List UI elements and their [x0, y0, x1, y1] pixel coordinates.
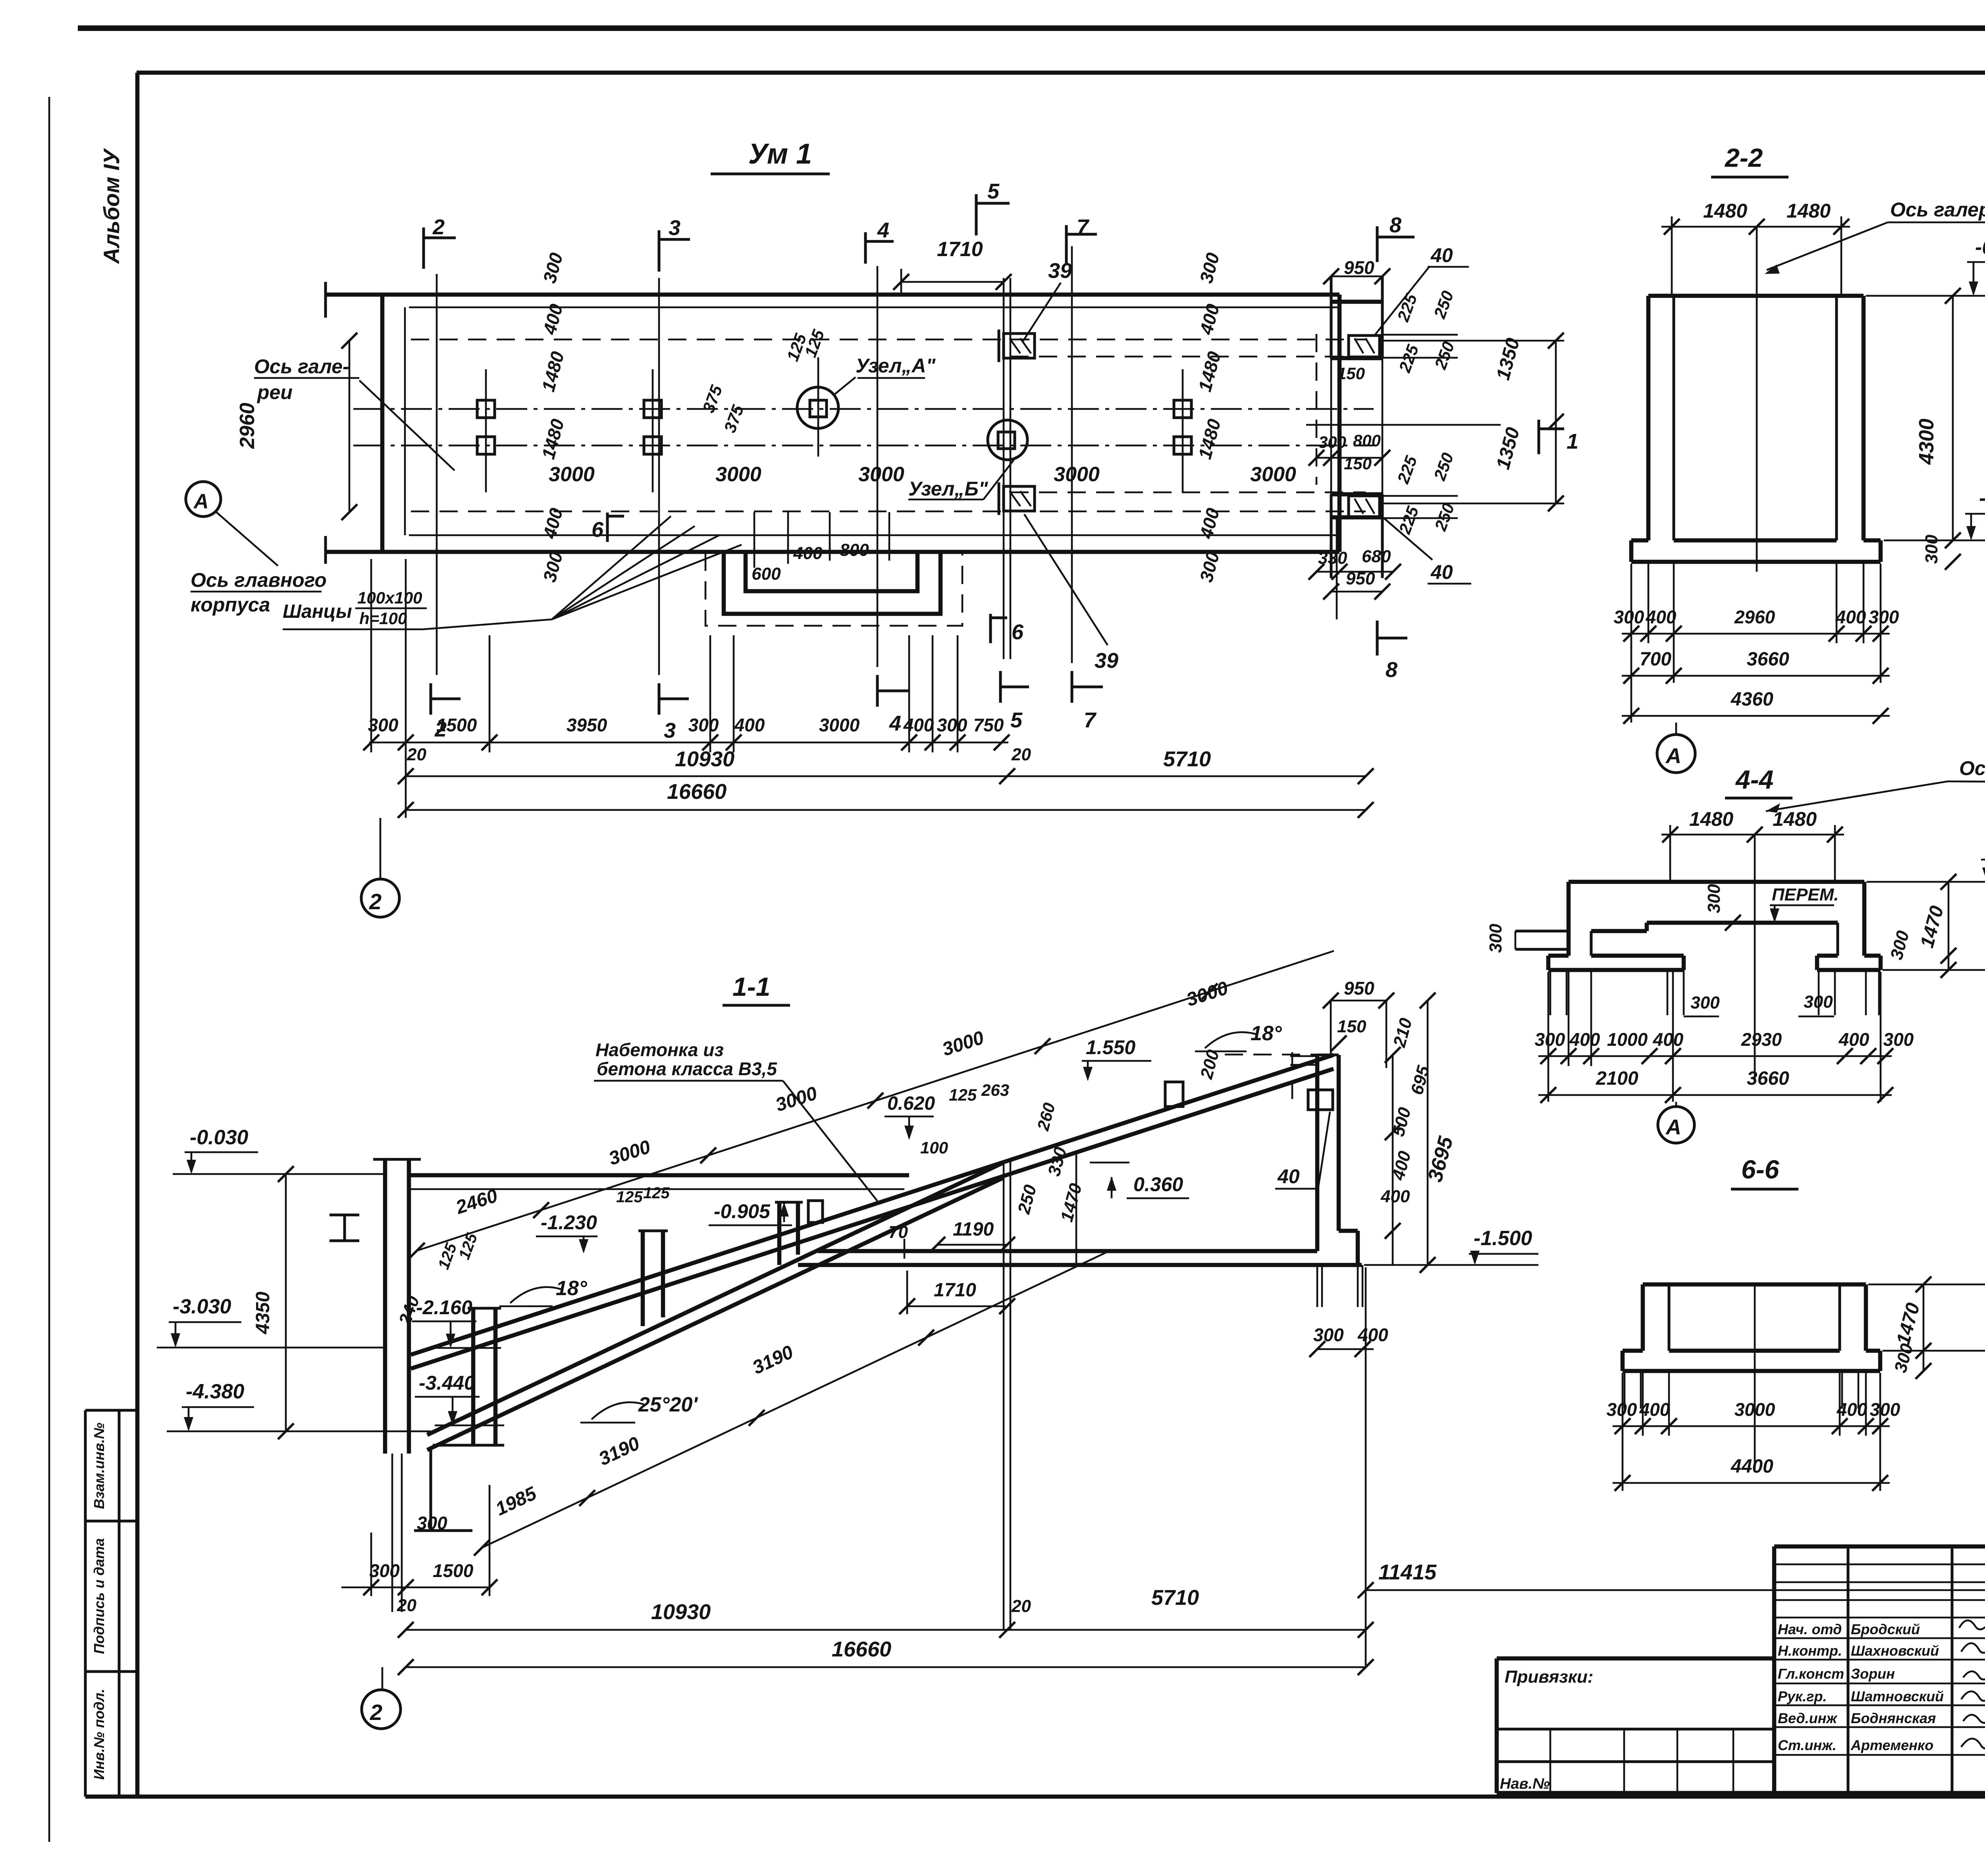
svg-text:300: 300	[369, 1560, 400, 1581]
svg-text:1500: 1500	[433, 1560, 474, 1581]
svg-text:10930: 10930	[651, 1600, 711, 1624]
svg-text:2: 2	[370, 1700, 382, 1725]
svg-text:400: 400	[1639, 1399, 1670, 1420]
svg-text:125: 125	[616, 1188, 643, 1206]
svg-text:10930: 10930	[675, 747, 734, 771]
svg-text:-1.500: -1.500	[1474, 1227, 1532, 1250]
svg-text:Рук.гр.: Рук.гр.	[1778, 1688, 1827, 1704]
svg-text:Узел„Б": Узел„Б"	[908, 478, 989, 500]
svg-text:125: 125	[643, 1184, 670, 1202]
svg-text:Бродский: Бродский	[1851, 1621, 1920, 1637]
svg-text:Привязки:: Привязки:	[1505, 1667, 1594, 1687]
svg-text:1480: 1480	[538, 416, 568, 461]
svg-text:8: 8	[1389, 213, 1401, 237]
svg-text:300: 300	[1887, 928, 1913, 962]
svg-text:2960: 2960	[236, 403, 259, 449]
svg-text:1985: 1985	[492, 1483, 540, 1520]
svg-text:ПЕРЕМ.: ПЕРЕМ.	[1772, 885, 1839, 904]
svg-text:375: 375	[720, 402, 747, 435]
svg-text:3000: 3000	[1734, 1399, 1775, 1420]
svg-text:3695: 3695	[1424, 1134, 1458, 1184]
svg-text:16660: 16660	[667, 780, 727, 804]
svg-text:39: 39	[1095, 649, 1118, 673]
svg-text:2: 2	[369, 889, 382, 914]
svg-text:2930: 2930	[1741, 1029, 1782, 1050]
svg-text:250: 250	[1430, 288, 1457, 321]
svg-text:3950: 3950	[567, 715, 607, 735]
svg-text:950: 950	[1344, 257, 1374, 278]
svg-text:4: 4	[889, 711, 901, 735]
svg-text:1: 1	[1567, 430, 1578, 453]
svg-text:750: 750	[973, 715, 1004, 735]
svg-text:1190: 1190	[953, 1219, 994, 1240]
svg-text:5710: 5710	[1151, 1586, 1199, 1610]
svg-text:3: 3	[669, 216, 680, 240]
svg-text:3000: 3000	[819, 715, 860, 735]
svg-text:Ось галереи: Ось галереи	[1890, 199, 1985, 221]
svg-text:3: 3	[664, 719, 676, 742]
svg-text:Шанцы: Шанцы	[283, 601, 352, 622]
svg-text:реи: реи	[256, 381, 293, 403]
svg-text:7: 7	[1077, 215, 1090, 239]
svg-text:400: 400	[903, 715, 934, 735]
svg-text:150: 150	[1337, 364, 1365, 383]
svg-text:1500: 1500	[436, 715, 477, 735]
svg-text:-2.160: -2.160	[416, 1296, 472, 1319]
svg-text:600: 600	[752, 564, 781, 584]
svg-text:330: 330	[1318, 548, 1347, 568]
svg-text:400: 400	[1653, 1029, 1684, 1050]
svg-text:300: 300	[1313, 1325, 1344, 1345]
svg-text:-3.030: -3.030	[173, 1295, 231, 1318]
svg-text:3000: 3000	[549, 463, 595, 486]
svg-text:h=100: h=100	[359, 609, 407, 628]
svg-text:-3.440: -3.440	[419, 1372, 475, 1394]
svg-text:400: 400	[1835, 607, 1866, 627]
svg-text:400: 400	[793, 544, 823, 563]
svg-text:1470: 1470	[1916, 904, 1948, 950]
svg-text:400: 400	[1837, 1399, 1867, 1420]
svg-text:400: 400	[734, 715, 765, 735]
svg-text:5: 5	[987, 179, 1000, 203]
svg-text:950: 950	[1344, 978, 1374, 999]
svg-text:16660: 16660	[832, 1637, 891, 1661]
svg-text:Ум 1: Ум 1	[748, 138, 812, 170]
svg-text:8: 8	[1386, 658, 1397, 682]
svg-text:300: 300	[539, 549, 567, 584]
svg-text:1350: 1350	[1492, 425, 1524, 472]
svg-text:Нав.№: Нав.№	[1500, 1776, 1550, 1792]
svg-text:4300: 4300	[1915, 418, 1938, 465]
svg-text:100: 100	[920, 1138, 948, 1157]
svg-text:700: 700	[1640, 649, 1671, 670]
svg-text:300: 300	[1318, 433, 1346, 451]
svg-text:20: 20	[397, 1596, 416, 1615]
svg-text:Н.контр.: Н.контр.	[1778, 1643, 1842, 1659]
svg-text:20: 20	[1011, 1596, 1031, 1616]
svg-text:300: 300	[368, 715, 399, 735]
svg-text:3660: 3660	[1747, 649, 1789, 670]
svg-text:бетона класса В3,5: бетона класса В3,5	[597, 1059, 777, 1079]
svg-text:3000: 3000	[1184, 978, 1231, 1010]
svg-text:25°20': 25°20'	[638, 1393, 698, 1416]
svg-text:225: 225	[1395, 342, 1422, 375]
svg-text:2460: 2460	[453, 1185, 500, 1219]
svg-text:300: 300	[1486, 924, 1505, 953]
svg-text:3000: 3000	[1250, 463, 1296, 486]
svg-text:Подпись и дата: Подпись и дата	[91, 1538, 107, 1654]
svg-text:3000: 3000	[858, 463, 904, 486]
svg-text:Ст.инж.: Ст.инж.	[1778, 1737, 1837, 1753]
svg-text:300: 300	[1535, 1029, 1565, 1050]
svg-text:695: 695	[1407, 1063, 1433, 1097]
svg-text:125: 125	[801, 327, 828, 360]
svg-text:Инв.№ подл.: Инв.№ подл.	[91, 1689, 107, 1780]
svg-text:Ось гале-: Ось гале-	[254, 355, 349, 378]
svg-text:300: 300	[937, 715, 967, 735]
svg-text:11415: 11415	[1378, 1560, 1437, 1584]
svg-text:4400: 4400	[1731, 1456, 1773, 1477]
svg-text:210: 210	[1389, 1016, 1416, 1049]
svg-text:40: 40	[1277, 1165, 1300, 1188]
svg-text:3000: 3000	[715, 463, 761, 486]
svg-text:20: 20	[1011, 745, 1031, 764]
svg-text:1350: 1350	[1492, 336, 1524, 382]
svg-text:300: 300	[417, 1513, 447, 1533]
svg-text:корпуса: корпуса	[191, 594, 270, 616]
svg-text:1-1: 1-1	[732, 972, 770, 1001]
svg-text:-0.030: -0.030	[1975, 236, 1985, 259]
svg-text:6: 6	[1012, 620, 1024, 644]
svg-text:375: 375	[699, 382, 726, 415]
svg-text:300: 300	[1883, 1029, 1914, 1050]
svg-text:200: 200	[1197, 1047, 1223, 1081]
svg-text:Вед.инж: Вед.инж	[1778, 1710, 1838, 1726]
svg-text:-0.030: -0.030	[190, 1126, 249, 1149]
svg-text:-0.905: -0.905	[714, 1200, 771, 1222]
svg-text:150: 150	[1337, 1017, 1366, 1036]
svg-text:2-2: 2-2	[1724, 143, 1763, 172]
svg-text:300: 300	[1870, 1399, 1900, 1420]
svg-text:Узел„А": Узел„А"	[856, 355, 936, 377]
svg-text:800: 800	[1353, 431, 1381, 450]
svg-text:330: 330	[1044, 1145, 1070, 1178]
svg-text:3190: 3190	[749, 1342, 796, 1379]
svg-text:6-6: 6-6	[1741, 1155, 1780, 1184]
svg-text:20: 20	[407, 745, 426, 764]
svg-text:1.550: 1.550	[1086, 1036, 1135, 1059]
svg-text:300: 300	[1690, 993, 1720, 1012]
svg-text:300: 300	[1614, 607, 1644, 627]
svg-text:2960: 2960	[1734, 607, 1775, 627]
svg-text:250: 250	[1431, 339, 1458, 372]
svg-text:3190: 3190	[595, 1433, 643, 1470]
svg-text:400: 400	[1357, 1325, 1388, 1345]
svg-text:5710: 5710	[1163, 747, 1211, 771]
svg-text:0.360: 0.360	[1133, 1173, 1183, 1195]
svg-text:300: 300	[1195, 549, 1223, 584]
svg-text:Боднянская: Боднянская	[1851, 1710, 1936, 1726]
svg-text:Взам.инв.№: Взам.инв.№	[91, 1423, 107, 1509]
svg-text:4350: 4350	[252, 1292, 274, 1334]
svg-text:40: 40	[1430, 561, 1453, 583]
svg-text:225: 225	[1393, 453, 1421, 486]
svg-text:4360: 4360	[1731, 689, 1773, 710]
svg-text:Ось галереи: Ось галереи	[1959, 757, 1985, 779]
svg-text:2: 2	[432, 215, 445, 239]
svg-text:3000: 3000	[1054, 463, 1100, 486]
svg-text:7: 7	[1084, 708, 1097, 732]
svg-text:Гл.конст: Гл.конст	[1778, 1666, 1844, 1682]
svg-text:1470: 1470	[1892, 1301, 1924, 1347]
svg-text:100х100: 100х100	[357, 588, 422, 607]
svg-text:300: 300	[1869, 607, 1899, 627]
svg-text:-4.380: -4.380	[186, 1380, 245, 1403]
svg-text:950: 950	[1346, 569, 1375, 588]
svg-text:А: А	[1665, 744, 1681, 768]
svg-text:250: 250	[1430, 450, 1457, 483]
svg-text:5: 5	[1010, 708, 1023, 732]
svg-text:680: 680	[1362, 547, 1391, 566]
svg-text:3000: 3000	[940, 1027, 987, 1060]
svg-text:1480: 1480	[1786, 200, 1831, 222]
svg-text:1710: 1710	[937, 238, 983, 261]
svg-text:800: 800	[840, 540, 869, 560]
svg-text:Артеменко: Артеменко	[1850, 1737, 1933, 1753]
svg-text:3000: 3000	[606, 1136, 653, 1169]
svg-text:1480: 1480	[1703, 200, 1747, 222]
svg-text:250: 250	[1014, 1182, 1041, 1216]
svg-text:Нач. отд: Нач. отд	[1778, 1621, 1842, 1637]
svg-text:А: А	[1665, 1115, 1681, 1139]
svg-text:2100: 2100	[1596, 1068, 1638, 1089]
svg-text:Шахновский: Шахновский	[1851, 1643, 1939, 1659]
svg-text:Альбом ІУ: Альбом ІУ	[99, 148, 124, 264]
svg-text:Шатновский: Шатновский	[1851, 1688, 1944, 1704]
svg-text:400: 400	[1380, 1187, 1410, 1206]
svg-text:Набетонка из: Набетонка из	[595, 1039, 724, 1060]
svg-text:300: 300	[539, 251, 567, 285]
svg-text:125: 125	[949, 1085, 977, 1104]
svg-text:-1.230: -1.230	[541, 1211, 597, 1234]
svg-text:Зорин: Зорин	[1851, 1666, 1895, 1682]
svg-text:1480: 1480	[1773, 808, 1817, 830]
svg-text:3660: 3660	[1747, 1068, 1789, 1089]
svg-text:4-4: 4-4	[1735, 765, 1773, 794]
svg-text:1480: 1480	[1194, 416, 1225, 461]
svg-text:300: 300	[688, 715, 719, 735]
svg-text:0.620: 0.620	[887, 1093, 935, 1114]
svg-text:400: 400	[1569, 1029, 1600, 1050]
svg-text:1480: 1480	[1689, 808, 1733, 830]
svg-text:1710: 1710	[934, 1280, 976, 1301]
svg-text:4: 4	[877, 218, 889, 242]
svg-text:300: 300	[1195, 251, 1223, 285]
svg-text:300: 300	[1891, 1341, 1917, 1375]
svg-text:125: 125	[455, 1231, 481, 1262]
svg-text:1470: 1470	[1057, 1181, 1086, 1224]
svg-text:39: 39	[1048, 259, 1072, 283]
svg-text:400: 400	[1839, 1029, 1869, 1050]
svg-text:300: 300	[1704, 884, 1724, 913]
svg-text:1000: 1000	[1607, 1029, 1648, 1050]
svg-text:6: 6	[592, 518, 604, 542]
svg-text:300: 300	[1922, 534, 1941, 564]
svg-text:40: 40	[1430, 244, 1453, 266]
svg-text:Ось главного: Ось главного	[191, 569, 327, 591]
svg-text:400: 400	[1646, 607, 1677, 627]
svg-text:263: 263	[981, 1081, 1009, 1099]
svg-text:-4.330: -4.330	[1979, 487, 1985, 510]
svg-text:260: 260	[1033, 1101, 1059, 1133]
svg-text:1480: 1480	[538, 349, 568, 394]
svg-text:250: 250	[1431, 501, 1458, 534]
svg-text:А: А	[193, 490, 209, 513]
svg-text:300: 300	[1804, 992, 1833, 1012]
